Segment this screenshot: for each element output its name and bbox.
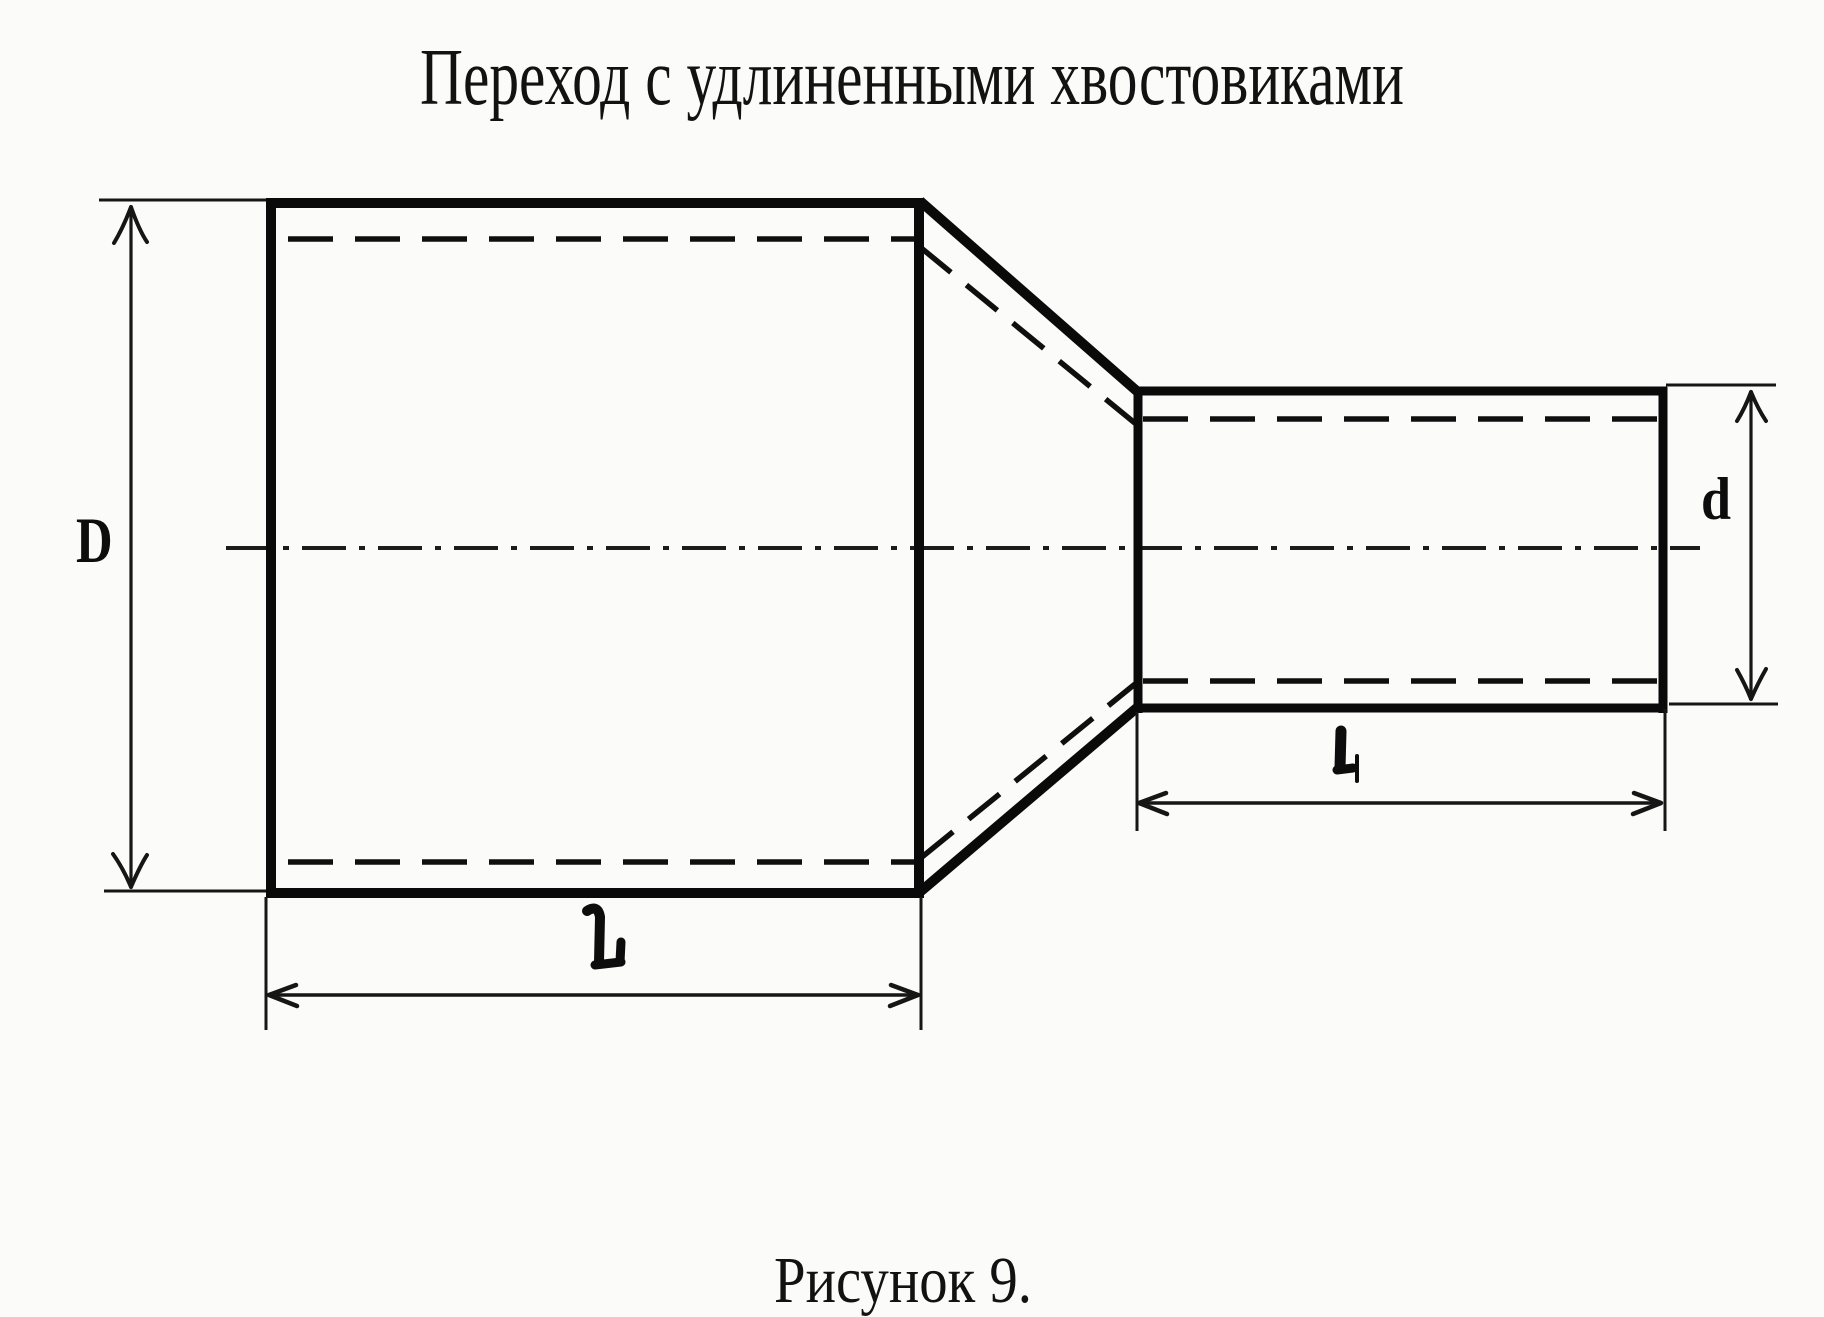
svg-text:Переход с удлиненными хвостови: Переход с удлиненными хвостовиками <box>420 34 1404 122</box>
svg-text:d: d <box>1701 466 1731 532</box>
svg-text:Рисунок 9.: Рисунок 9. <box>774 1244 1032 1317</box>
svg-text:D: D <box>76 504 113 576</box>
